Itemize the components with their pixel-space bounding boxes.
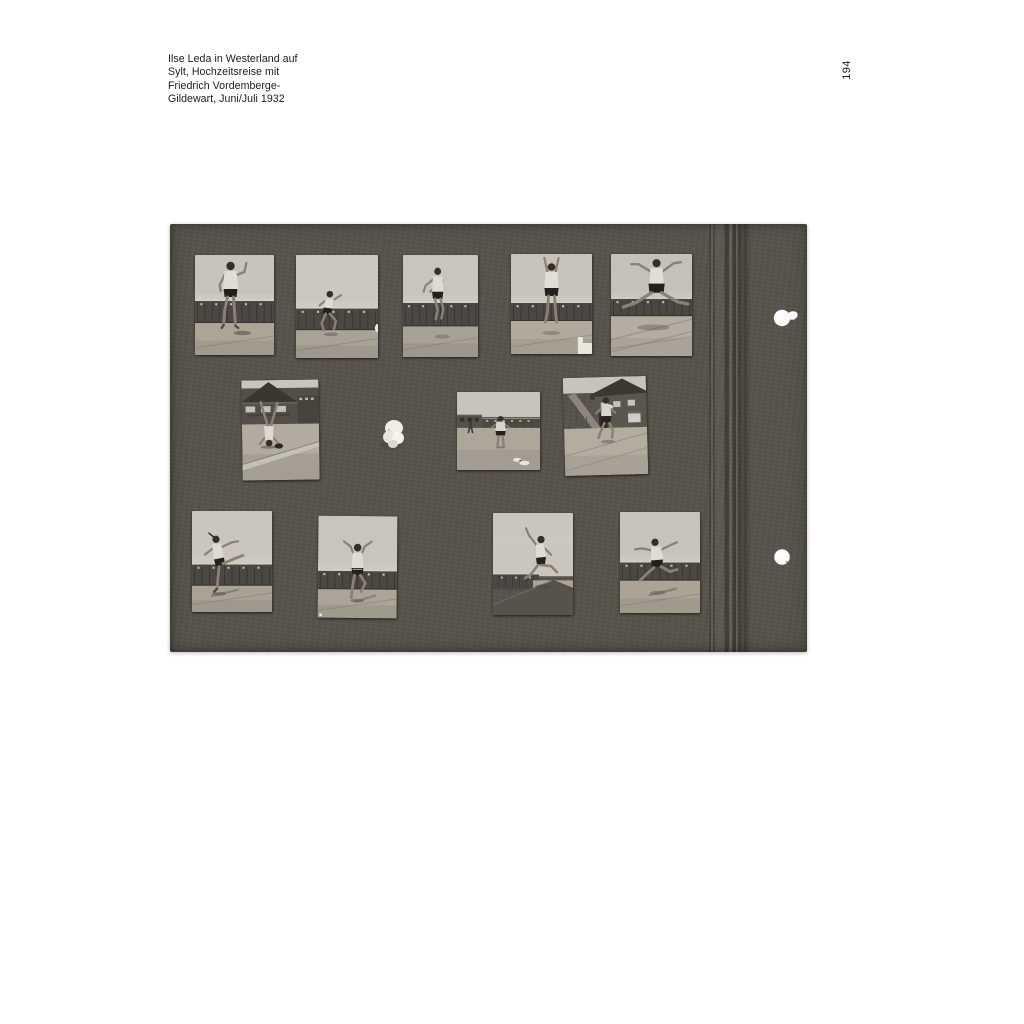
photo-7 bbox=[457, 392, 540, 470]
photo-image bbox=[296, 255, 378, 358]
page-number: 194 bbox=[841, 58, 855, 82]
caption-line: Sylt, Hochzeitsreise mit bbox=[168, 66, 338, 79]
book-page: Ilse Leda in Westerland aufSylt, Hochzei… bbox=[0, 0, 1024, 1024]
photo-9 bbox=[192, 511, 272, 612]
photo-12 bbox=[620, 512, 700, 613]
photo-image bbox=[403, 255, 478, 357]
photo-8 bbox=[563, 376, 649, 476]
photo-image bbox=[192, 511, 272, 612]
caption-line: Friedrich Vordemberge- bbox=[168, 80, 338, 93]
caption-line: Gildewart, Juni/Juli 1932 bbox=[168, 93, 338, 106]
photo-image bbox=[241, 379, 319, 480]
photo-6 bbox=[241, 379, 319, 480]
photo-image bbox=[611, 254, 692, 356]
photo-image bbox=[457, 392, 540, 470]
photo-5 bbox=[611, 254, 692, 356]
photo-10 bbox=[318, 516, 398, 619]
photo-image bbox=[620, 512, 700, 613]
photo-caption: Ilse Leda in Westerland aufSylt, Hochzei… bbox=[168, 53, 338, 107]
photo-image bbox=[493, 513, 573, 615]
photo-11 bbox=[493, 513, 573, 615]
caption-line: Ilse Leda in Westerland auf bbox=[168, 53, 338, 66]
photo-1 bbox=[195, 255, 274, 355]
photo-4 bbox=[511, 254, 592, 354]
photo-image bbox=[318, 516, 398, 619]
photo-image bbox=[511, 254, 592, 354]
photo-image bbox=[563, 376, 649, 476]
photo-image bbox=[195, 255, 274, 355]
binding-grooves bbox=[705, 224, 753, 652]
photo-3 bbox=[403, 255, 478, 357]
photo-2 bbox=[296, 255, 378, 358]
